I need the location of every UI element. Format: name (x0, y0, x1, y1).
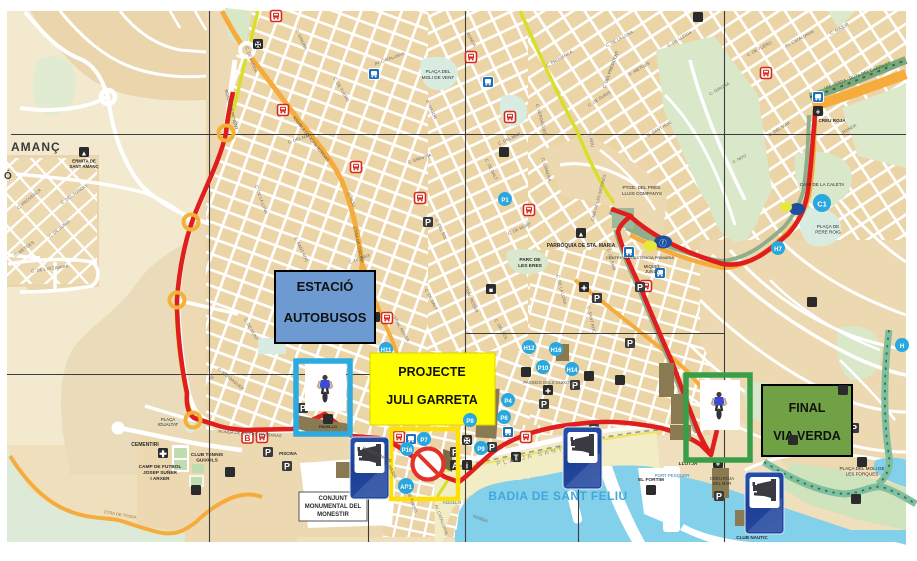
svg-text:P1: P1 (501, 198, 509, 204)
svg-text:P16: P16 (402, 448, 413, 454)
svg-text:BADIA DE SANT FELIU: BADIA DE SANT FELIU (488, 489, 627, 503)
svg-text:+: + (816, 108, 821, 117)
svg-text:PAVELLO: PAVELLO (319, 424, 337, 429)
svg-text:PROJECTE: PROJECTE (398, 365, 465, 379)
svg-text:MONESTIR: MONESTIR (317, 512, 349, 518)
svg-text:ⓕ: ⓕ (659, 239, 667, 248)
svg-text:P10: P10 (538, 366, 549, 372)
svg-text:H14: H14 (566, 368, 578, 374)
svg-text:CAMI DE LA CALETA: CAMI DE LA CALETA (800, 182, 846, 187)
svg-text:LES FORQUES: LES FORQUES (846, 472, 879, 477)
svg-text:✠: ✠ (255, 41, 262, 50)
svg-text:■: ■ (489, 288, 493, 295)
svg-text:✚: ✚ (159, 449, 167, 459)
svg-text:JULI GARRETA: JULI GARRETA (386, 393, 477, 407)
svg-text:✚: ✚ (545, 388, 551, 396)
svg-text:PTGE. DEL PRES.: PTGE. DEL PRES. (623, 185, 662, 190)
svg-text:ESTACIÓ: ESTACIÓ (297, 279, 354, 294)
svg-text:PLAÇA DEL: PLAÇA DEL (425, 69, 450, 74)
svg-text:H12: H12 (523, 346, 535, 352)
svg-text:VIA VERDA: VIA VERDA (773, 429, 841, 443)
svg-text:LES ERES: LES ERES (518, 263, 543, 269)
svg-text:H: H (900, 344, 904, 350)
svg-text:JOSEP SUÑER: JOSEP SUÑER (143, 469, 178, 476)
svg-text:P6: P6 (500, 416, 508, 422)
svg-text:Ó: Ó (4, 169, 12, 182)
svg-text:P8: P8 (466, 419, 474, 425)
svg-text:GUIXOLS: GUIXOLS (196, 458, 218, 464)
svg-text:✠: ✠ (464, 437, 471, 446)
svg-text:P9: P9 (477, 447, 485, 453)
svg-text:P7: P7 (420, 438, 428, 444)
svg-text:PARC DE: PARC DE (519, 257, 541, 263)
svg-text:PORT PESQUER: PORT PESQUER (655, 473, 690, 478)
svg-text:MOLI DE VENT: MOLI DE VENT (422, 75, 455, 80)
svg-text:PISCINA: PISCINA (279, 451, 298, 456)
svg-text:MONUMENTAL DEL: MONUMENTAL DEL (305, 504, 362, 510)
svg-text:P4: P4 (504, 399, 512, 405)
svg-text:FINAL: FINAL (789, 401, 826, 415)
svg-text:I ARXER: I ARXER (150, 476, 170, 482)
svg-text:PLAÇA DE: PLAÇA DE (817, 224, 839, 229)
svg-text:SANT AMANÇ: SANT AMANÇ (69, 164, 99, 169)
svg-text:PARRÒQUIA DE STA. MARIA: PARRÒQUIA DE STA. MARIA (547, 241, 616, 249)
svg-text:H16: H16 (550, 348, 562, 354)
svg-text:PASSEIG DELS GUIXOLS: PASSEIG DELS GUIXOLS (523, 380, 574, 385)
svg-text:H7: H7 (774, 247, 782, 253)
svg-text:ERMITA DE: ERMITA DE (72, 159, 96, 164)
svg-text:▲: ▲ (81, 151, 88, 158)
svg-text:CLUB NAUTIC: CLUB NAUTIC (736, 535, 768, 540)
svg-text:CEMENTIRI: CEMENTIRI (131, 442, 159, 448)
svg-text:AMANÇ: AMANÇ (11, 140, 61, 154)
svg-text:DEL MAR: DEL MAR (713, 481, 731, 486)
svg-text:✚: ✚ (581, 285, 587, 293)
svg-text:PLAÇA DEL MOLI DE: PLAÇA DEL MOLI DE (839, 466, 884, 471)
svg-text:i: i (466, 462, 468, 471)
svg-text:JUNLA: JUNLA (645, 269, 659, 274)
svg-text:CREU ROJA: CREU ROJA (818, 118, 846, 123)
svg-text:LLUIS COMPANYS: LLUIS COMPANYS (622, 191, 662, 196)
svg-text:CONJUNT: CONJUNT (318, 496, 347, 502)
svg-text:CLUB TENNIS: CLUB TENNIS (191, 452, 224, 458)
svg-text:CAMP DE FUTBOL: CAMP DE FUTBOL (139, 464, 182, 470)
svg-text:AUTOBUSOS: AUTOBUSOS (284, 310, 367, 325)
svg-text:▲: ▲ (578, 232, 585, 239)
svg-text:IGUALTAT: IGUALTAT (158, 422, 179, 427)
svg-text:CENTRE D'ASSISTENCIA PRIMARIA: CENTRE D'ASSISTENCIA PRIMARIA (606, 255, 674, 260)
svg-text:PERE ROIG: PERE ROIG (815, 230, 841, 235)
svg-text:C1: C1 (817, 200, 827, 209)
